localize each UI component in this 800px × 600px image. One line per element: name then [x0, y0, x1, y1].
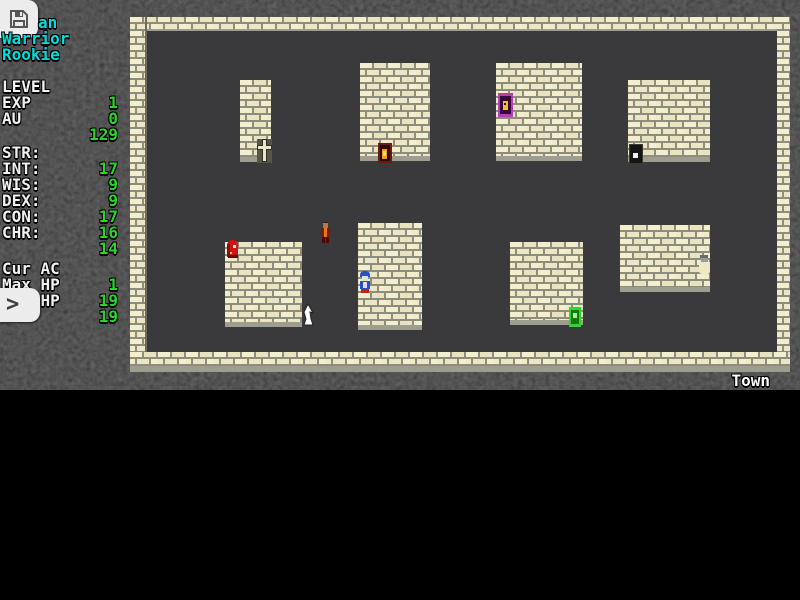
stat-label: AU — [2, 111, 21, 127]
player-character-blue[interactable] — [359, 271, 371, 294]
stat-row-con: CON: 16 — [0, 193, 118, 209]
black-door[interactable] — [629, 144, 643, 164]
stat-row-chr: CHR: 14 — [0, 209, 118, 225]
game-viewport: Town an Warrior Rookie LEVEL 1 EXP 0 — [0, 0, 800, 390]
stat-row-level: LEVEL 1 — [0, 63, 118, 79]
stat-row-au: AU 129 — [0, 95, 118, 111]
stat-row-cur-ac: Cur AC 1 — [0, 245, 118, 261]
stat-row-max-hp: Max HP 19 — [0, 261, 118, 277]
stat-row-str: STR: 17 — [0, 129, 118, 145]
stat-row-exp: EXP 0 — [0, 79, 118, 95]
purple-door-with-figure[interactable] — [498, 93, 513, 117]
robed-npc[interactable] — [320, 222, 331, 244]
red-cloaked-npc[interactable] — [227, 240, 240, 260]
wall-left — [130, 17, 147, 372]
stat-row-dex: DEX: 17 — [0, 177, 118, 193]
stat-row-wis: WIS: 9 — [0, 161, 118, 177]
floppy-disk-icon — [7, 7, 31, 31]
wall-bottom — [130, 352, 790, 372]
cursor-arrow — [301, 303, 315, 327]
cross-shrine[interactable] — [257, 139, 272, 163]
game-screen: Town an Warrior Rookie LEVEL 1 EXP 0 — [0, 0, 800, 600]
white-townsperson[interactable] — [697, 255, 711, 276]
building-2 — [360, 63, 430, 161]
sidebar: an Warrior Rookie LEVEL 1 EXP 0 AU 129 S… — [0, 0, 130, 390]
red-door-with-flame[interactable] — [378, 143, 392, 163]
chevron-right-icon: > — [6, 288, 19, 322]
stat-value: 19 — [99, 309, 118, 325]
wall-right — [777, 17, 790, 372]
stat-row-int: INT: 9 — [0, 145, 118, 161]
green-door[interactable] — [569, 307, 581, 327]
location-label: Town — [688, 373, 770, 389]
stat-label: CHR: — [2, 225, 41, 241]
wall-top — [130, 17, 790, 31]
character-rank: Rookie — [2, 47, 60, 63]
sidebar-expand-button[interactable]: > — [0, 288, 40, 322]
